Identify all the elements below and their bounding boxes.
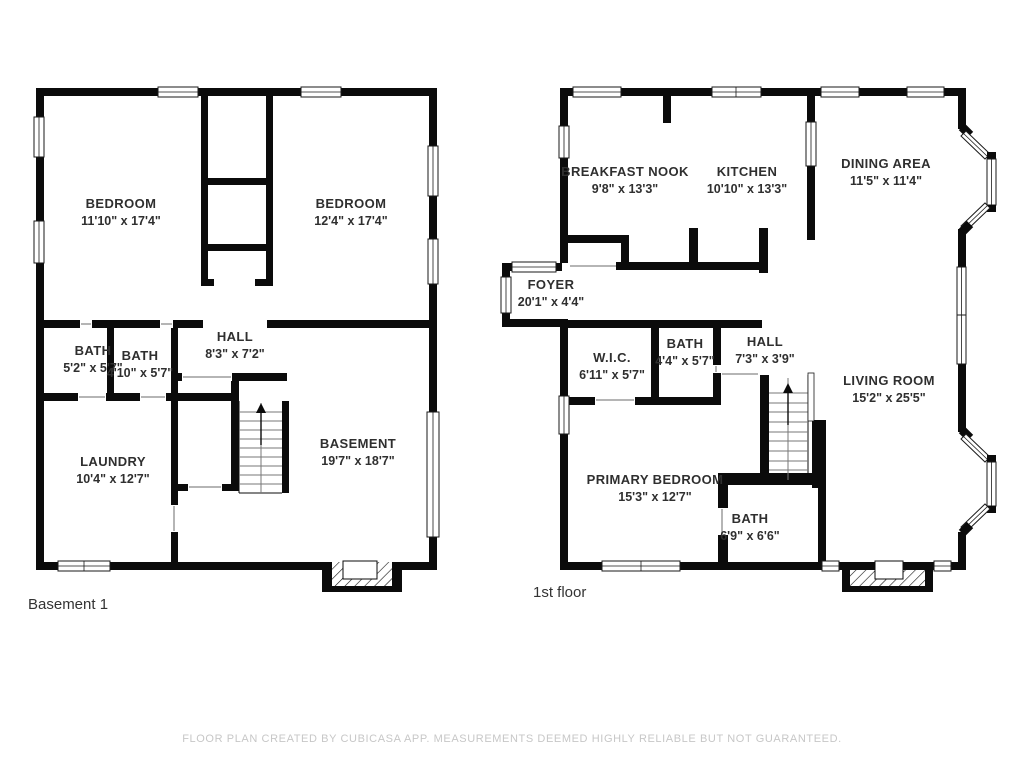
floor-title-first-floor: 1st floor: [533, 584, 586, 601]
first-floor-plan: [501, 87, 996, 592]
basement-stairs: [239, 401, 282, 493]
stairs-up-arrow-icon: [783, 383, 793, 393]
first-floor-window-lines: [506, 87, 951, 571]
first-floor-walls: [502, 88, 966, 570]
footer-disclaimer: FLOOR PLAN CREATED BY CUBICASA APP. MEAS…: [0, 733, 1024, 745]
living-bay-window: [961, 430, 996, 533]
basement-door-lines: [79, 324, 231, 531]
first-floor-stairs: [769, 373, 814, 480]
living-room-windows: [957, 267, 966, 364]
basement-windows: [34, 87, 439, 571]
dining-bay-window: [961, 127, 996, 232]
floorplan-canvas: BEDROOM 11'10" x 17'4" BEDROOM 12'4" x 1…: [0, 0, 1024, 767]
basement-exterior-stoop: [322, 561, 402, 592]
floorplan-drawing: [0, 0, 1024, 767]
floor-title-basement: Basement 1: [28, 596, 108, 613]
basement-walls: [36, 88, 437, 570]
basement-plan: [34, 87, 439, 592]
basement-window-lines: [39, 92, 433, 571]
stairs-up-arrow-icon: [256, 403, 266, 413]
